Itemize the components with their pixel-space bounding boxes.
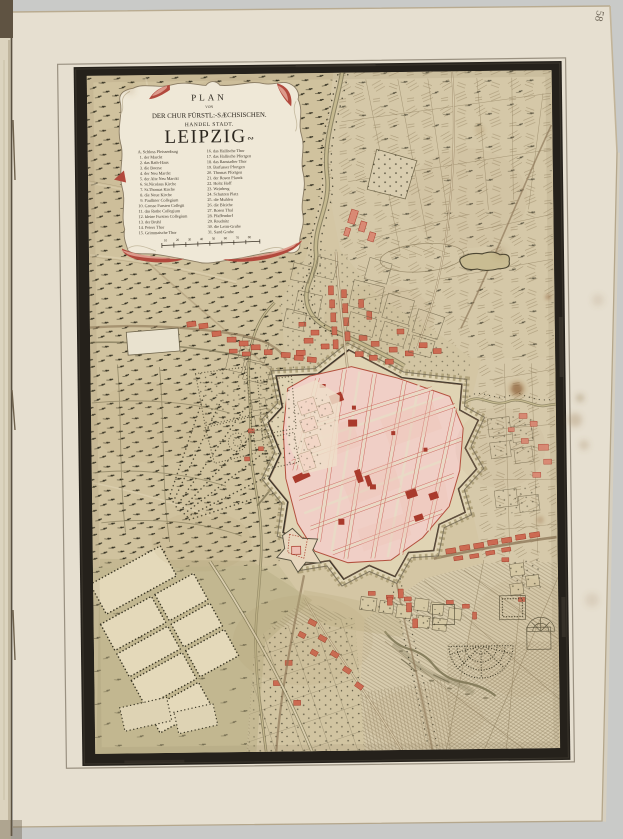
svg-text:15. Grimmaische Thor: 15. Grimmaische Thor xyxy=(139,230,178,235)
svg-text:60: 60 xyxy=(224,236,228,240)
svg-text:30. die Leim-Grube: 30. die Leim-Grube xyxy=(208,224,241,229)
svg-text:2. das Rath-Haus: 2. das Rath-Haus xyxy=(140,160,169,165)
svg-text:24. Schutzen Platz: 24. Schutzen Platz xyxy=(207,191,238,196)
svg-text:40: 40 xyxy=(200,237,204,241)
svg-text:31. Sand Grube: 31. Sand Grube xyxy=(208,229,234,234)
svg-text:70: 70 xyxy=(236,236,240,240)
svg-text:28. Pfaffendorf: 28. Pfaffendorf xyxy=(207,213,233,218)
svg-text:20: 20 xyxy=(176,238,180,242)
svg-text:80: 80 xyxy=(248,235,252,239)
svg-text:10: 10 xyxy=(164,238,168,242)
svg-text:PLAN: PLAN xyxy=(191,92,227,102)
svg-text:12. kleine Fursten Collegium: 12. kleine Fursten Collegium xyxy=(138,213,188,219)
svg-text:VON: VON xyxy=(205,105,213,109)
svg-text:30: 30 xyxy=(188,238,192,242)
svg-text:50: 50 xyxy=(212,237,216,241)
svg-text:∾: ∾ xyxy=(247,134,254,143)
svg-text:DER CHUR FÜRSTL:-SÆCHSISCHEN.: DER CHUR FÜRSTL:-SÆCHSISCHEN. xyxy=(152,112,267,120)
svg-text:LEIPZIG: LEIPZIG xyxy=(164,126,247,148)
